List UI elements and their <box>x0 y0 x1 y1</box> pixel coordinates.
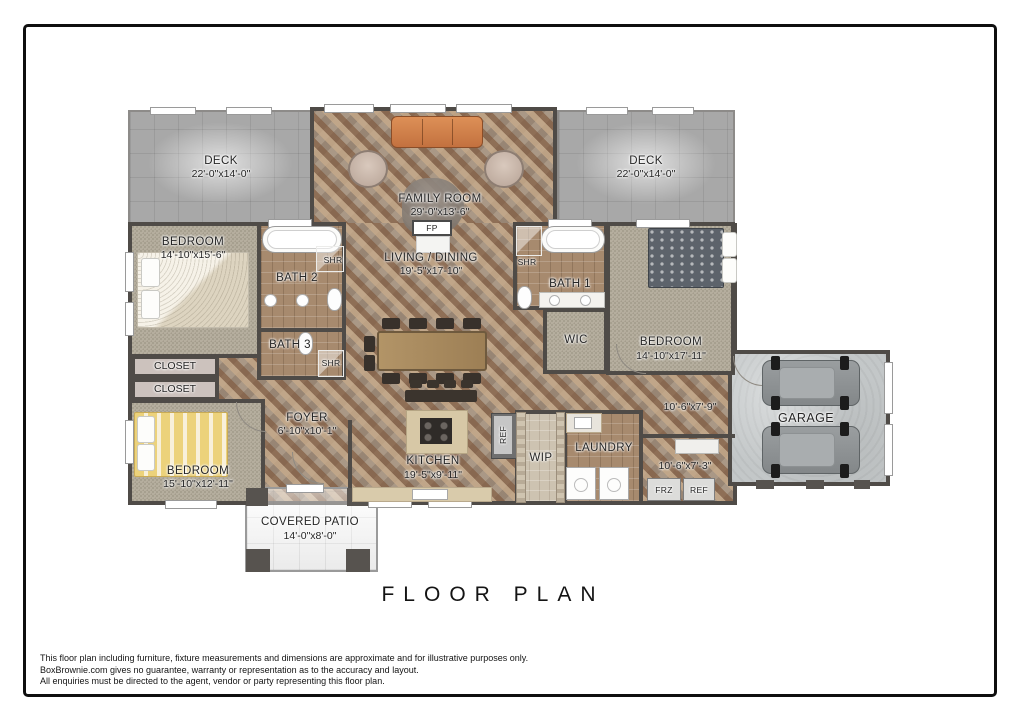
vanity-sink <box>264 294 277 307</box>
family-room-label: FAMILY ROOM <box>398 193 481 205</box>
car-wheel <box>771 396 780 410</box>
window <box>636 219 690 228</box>
car-wheel <box>840 464 849 478</box>
page-title: FLOOR PLAN <box>381 583 604 607</box>
bar-stool <box>427 380 439 388</box>
bar-stool <box>461 380 473 388</box>
front-door-opening <box>286 484 324 493</box>
bath-1-label: BATH 1 <box>549 278 591 290</box>
car-roof <box>779 433 835 467</box>
bedroom-bottom-left-label: BEDROOM <box>167 465 229 477</box>
sofa-seam <box>422 119 423 145</box>
window <box>390 104 446 113</box>
kitchen-dims: 19'-5"x9'-11" <box>404 469 462 481</box>
armchair <box>484 150 524 188</box>
dining-chair <box>382 373 400 384</box>
patio-pillar <box>346 549 370 572</box>
deck-right-label: DECK <box>629 155 663 167</box>
armchair <box>348 150 388 188</box>
covered-patio-dims: 14'-0"x8'-0" <box>284 530 337 542</box>
window <box>226 107 272 115</box>
bedroom-top-left-dims: 14'-10"x15'-6" <box>161 249 226 261</box>
shower-stall <box>516 226 542 256</box>
freezer-label: FRZ <box>655 485 672 495</box>
sofa-seam <box>452 119 453 145</box>
pillow <box>722 258 737 283</box>
pillow <box>137 444 155 471</box>
garage-door <box>884 362 893 414</box>
car-wheel <box>771 464 780 478</box>
car-roof <box>779 367 835 399</box>
toilet <box>327 288 342 311</box>
window <box>586 107 628 115</box>
fireplace-label: FP <box>426 223 437 233</box>
foyer-dims: 6'-10"x10'-1" <box>278 425 337 437</box>
car-wheel <box>840 422 849 436</box>
sofa <box>391 116 483 148</box>
garage-post <box>756 480 774 489</box>
vanity-sink <box>549 295 560 306</box>
fireplace-hearth <box>416 236 450 253</box>
kitchen-sink <box>412 489 448 500</box>
bed <box>648 228 724 288</box>
washer <box>566 467 596 500</box>
fridge-label: REF <box>498 426 508 444</box>
covered-patio-label: COVERED PATIO <box>261 516 359 528</box>
shower-label: SHR <box>518 257 537 267</box>
deck-left-label: DECK <box>204 155 238 167</box>
pantry-shelf <box>516 412 526 503</box>
hall-lower-dims: 10'-6"x7'-3" <box>659 460 712 472</box>
garage-door <box>884 424 893 476</box>
laundry-label: LAUNDRY <box>575 442 633 454</box>
pillow <box>141 290 160 319</box>
car-wheel <box>840 356 849 370</box>
bathtub <box>541 226 605 253</box>
dryer-door <box>607 478 621 492</box>
dining-chair <box>382 318 400 329</box>
patio-pillar <box>246 488 268 506</box>
window <box>324 104 374 113</box>
car-wheel <box>771 356 780 370</box>
disclaimer-line-3: All enquiries must be directed to the ag… <box>40 676 385 688</box>
pillow <box>137 416 155 443</box>
family-room-dims: 29'-0"x13'-6" <box>411 206 470 218</box>
bedroom-top-left-label: BEDROOM <box>162 236 224 248</box>
window <box>125 252 134 292</box>
dining-chair <box>364 336 375 352</box>
window <box>165 500 217 509</box>
shower-label: SHR <box>322 358 341 368</box>
bar-stool <box>444 380 456 388</box>
garage-post <box>854 480 870 489</box>
dining-chair <box>364 355 375 371</box>
window <box>125 302 134 336</box>
floor-plan-page: DECK 22'-0"x14'-0" DECK 22'-0"x14'-0" FA… <box>0 0 1024 724</box>
foyer-label: FOYER <box>286 412 328 424</box>
patio-pillar <box>246 549 270 572</box>
breakfast-bar <box>405 390 477 402</box>
garage-post <box>806 480 824 489</box>
vanity-sink <box>296 294 309 307</box>
pantry-shelf <box>556 412 565 503</box>
shower-label: SHR <box>324 255 343 265</box>
window <box>150 107 196 115</box>
washer-door <box>574 478 588 492</box>
bathtub-inner <box>546 230 600 249</box>
fridge2-label: REF <box>690 485 708 495</box>
kitchen-label: KITCHEN <box>406 455 459 467</box>
cooktop <box>420 418 452 444</box>
closet-lower-label: CLOSET <box>154 383 196 395</box>
dining-chair <box>436 318 454 329</box>
vanity-sink <box>580 295 591 306</box>
window <box>652 107 694 115</box>
living-dining-dims: 19'-5"x17-10" <box>400 265 463 277</box>
window <box>456 104 512 113</box>
bar-stool <box>410 380 422 388</box>
hall-bench <box>675 439 719 454</box>
bath-2-label: BATH 2 <box>276 272 318 284</box>
bath-3-label: BATH 3 <box>269 339 311 351</box>
deck-right-dims: 22'-0"x14'-0" <box>617 168 676 180</box>
living-dining-label: LIVING / DINING <box>384 252 478 264</box>
disclaimer-line-2: BoxBrownie.com gives no guarantee, warra… <box>40 665 419 677</box>
bedroom-right-dims: 14'-10"x17'-11" <box>636 350 706 362</box>
wic-label: WIC <box>564 334 588 346</box>
bedroom-right-label: BEDROOM <box>640 336 702 348</box>
closet-upper-label: CLOSET <box>154 360 196 372</box>
garage-label: GARAGE <box>778 411 834 425</box>
car <box>762 360 860 406</box>
laundry-sink <box>574 417 592 429</box>
dining-table <box>377 331 487 371</box>
dryer <box>599 467 629 500</box>
hall-divider-wall <box>643 434 735 438</box>
window <box>125 420 134 464</box>
toilet <box>517 286 532 309</box>
car-wheel <box>840 396 849 410</box>
bedroom-bottom-left-dims: 15'-10"x12'-11" <box>163 478 233 490</box>
disclaimer-line-1: This floor plan including furniture, fix… <box>40 653 528 665</box>
dining-chair <box>409 318 427 329</box>
wip-label: WIP <box>530 452 553 464</box>
pillow <box>722 232 737 257</box>
deck-left-dims: 22'-0"x14'-0" <box>192 168 251 180</box>
hall-upper-dims: 10'-6"x7'-9" <box>664 401 717 413</box>
pillow <box>141 258 160 287</box>
dining-chair <box>463 318 481 329</box>
car <box>762 426 860 474</box>
